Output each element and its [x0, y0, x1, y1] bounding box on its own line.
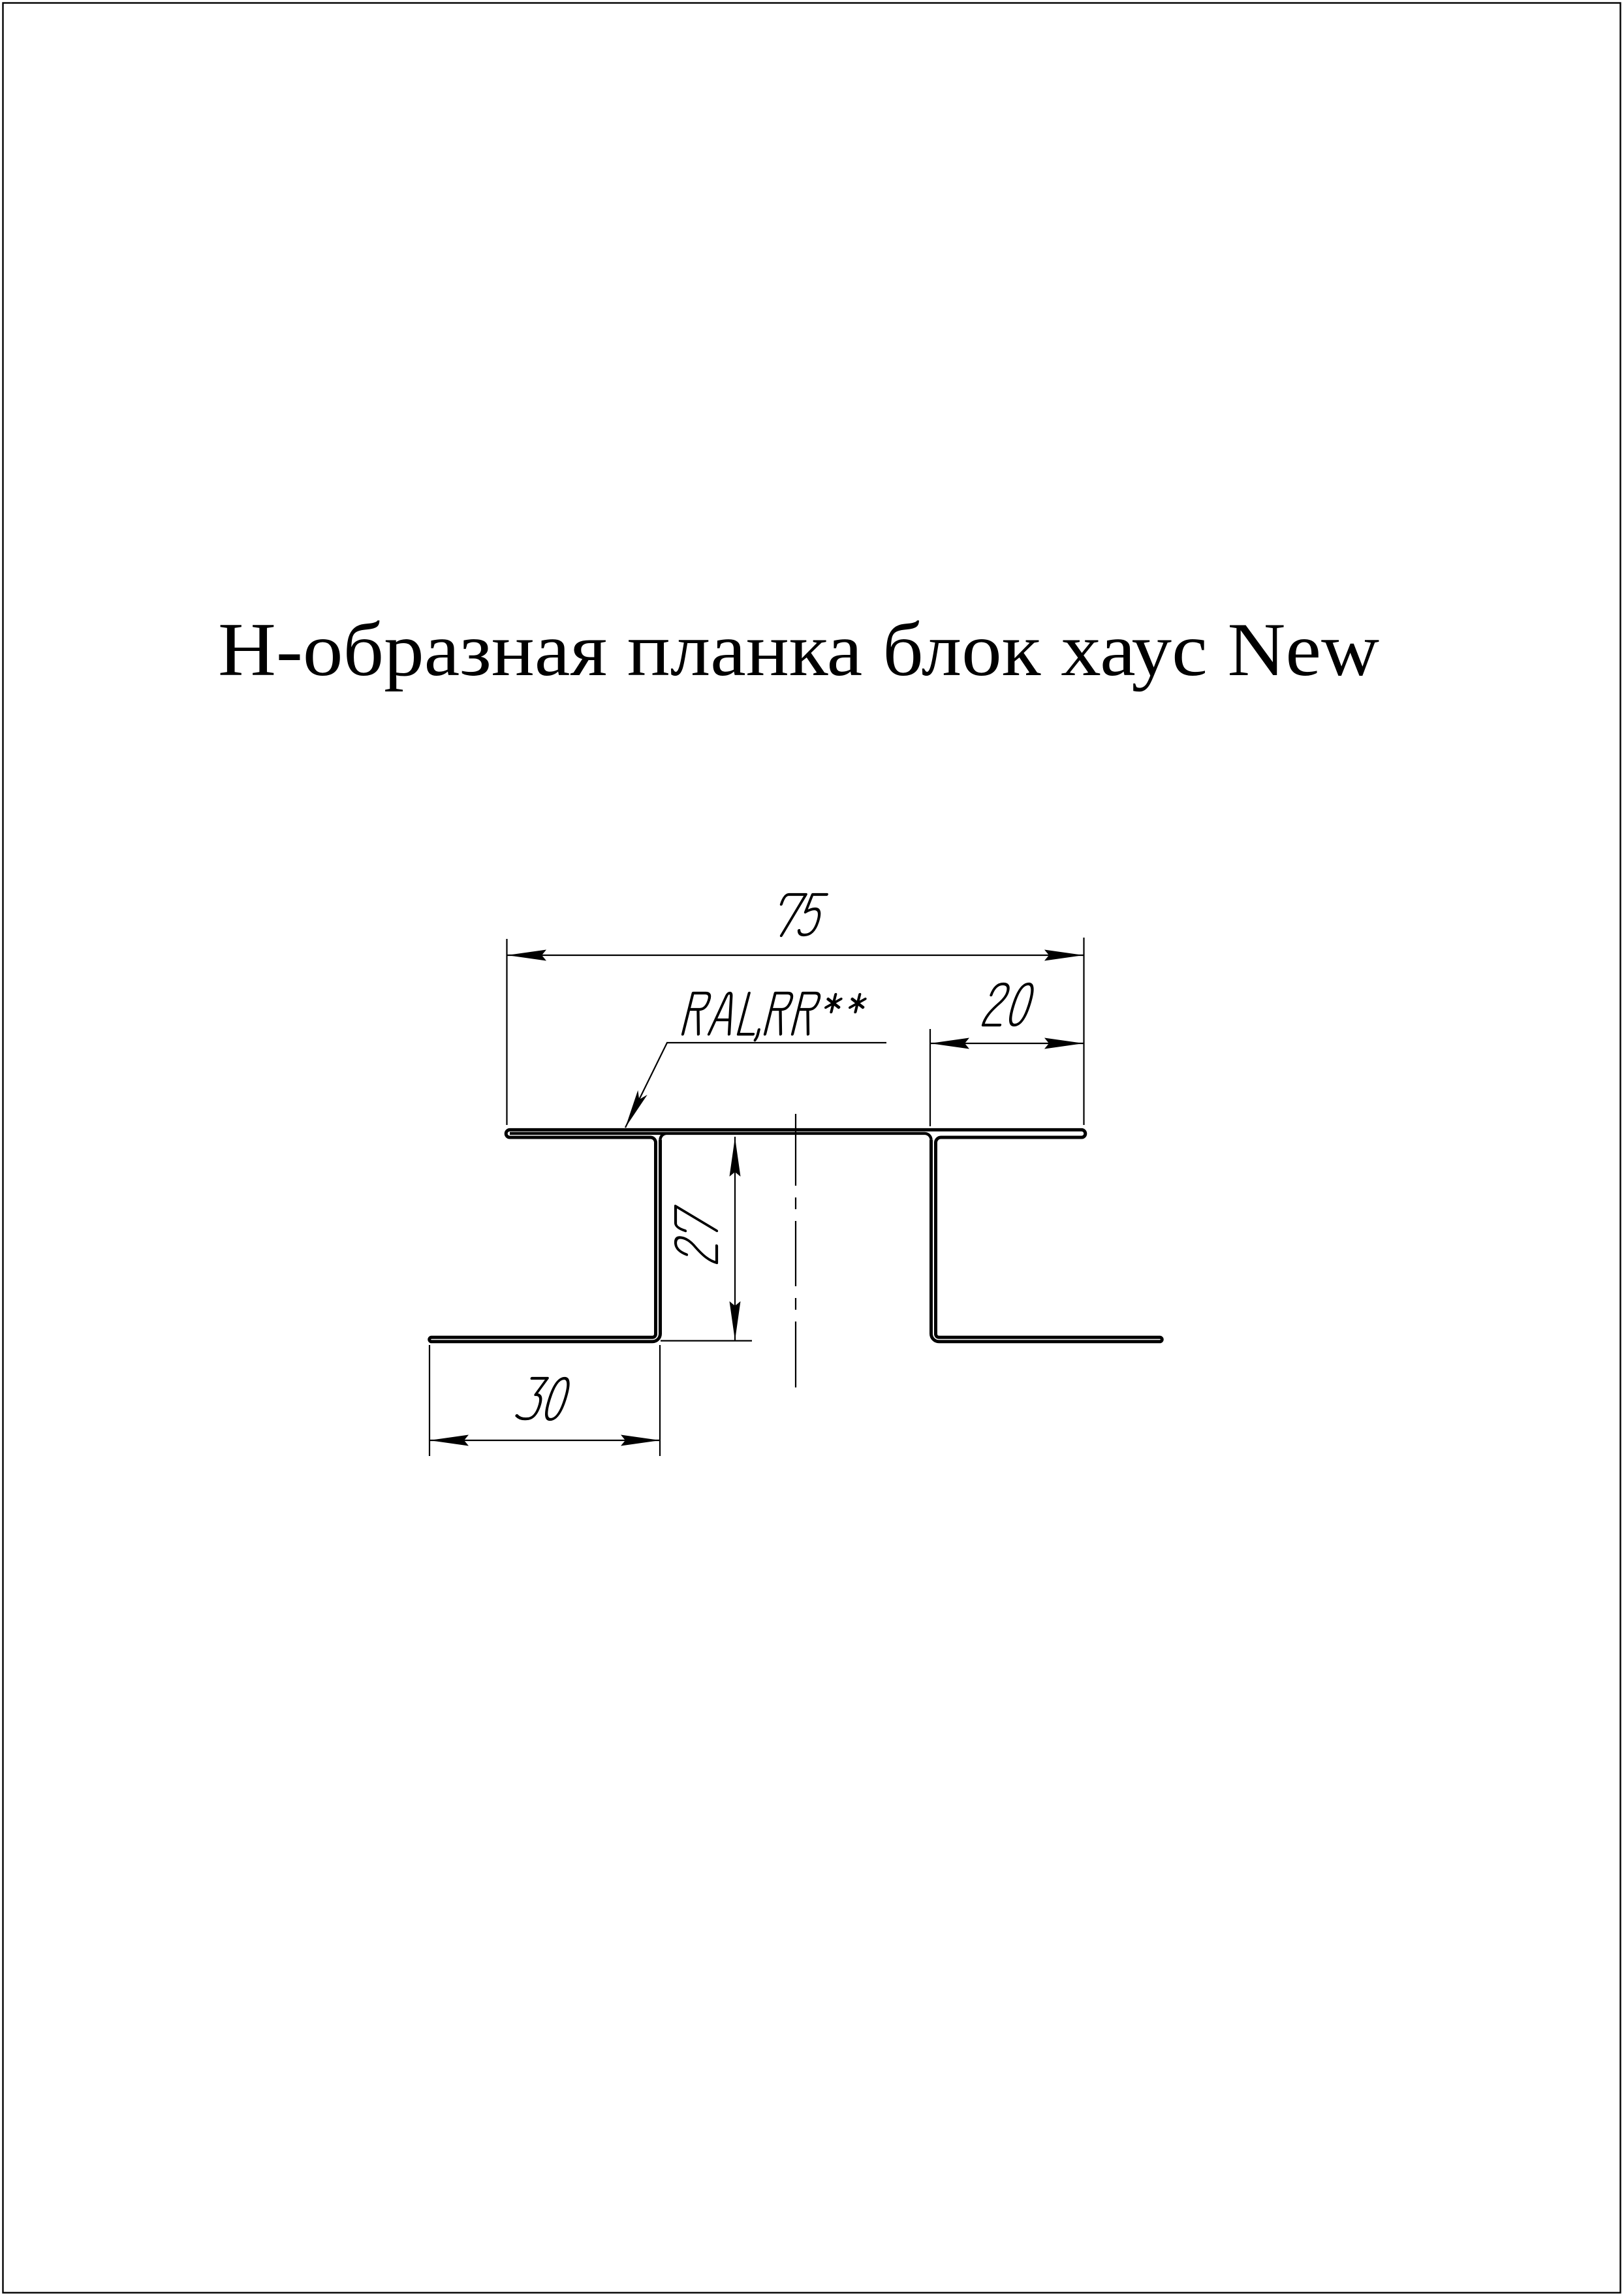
svg-text:Н-образная планка блок хаус Ne: Н-образная планка блок хаус New — [218, 608, 1379, 692]
